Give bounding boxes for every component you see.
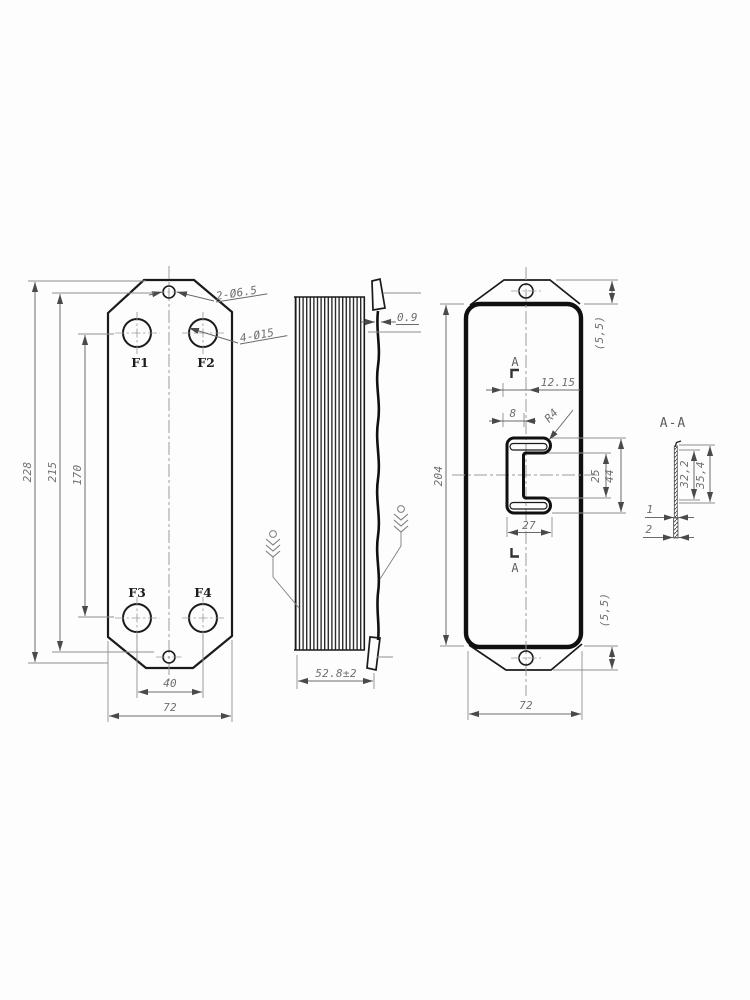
- dim-slot-offset: 12.15: [486, 376, 580, 397]
- port-label-f4: F4: [194, 585, 212, 600]
- dim-228-text: 228: [21, 462, 34, 483]
- back-plate-profile: [377, 311, 379, 640]
- dim-170-text: 170: [71, 465, 84, 486]
- section-mark-bottom: A: [511, 548, 519, 575]
- callout-ports-text: 4-Ø15: [239, 326, 275, 345]
- port-label-f2: F2: [197, 355, 215, 370]
- section-mark-top: A: [511, 355, 519, 378]
- section-label-a-top: A: [511, 355, 519, 369]
- dim-depth-inner: 32,2: [678, 451, 694, 499]
- dim-stack-depth: 52.8±2: [297, 655, 374, 689]
- bottom-tab: [367, 637, 380, 670]
- dim-354-text: 35,4: [694, 461, 707, 490]
- dim-55-bottom-text: (5,5): [598, 593, 611, 628]
- port-label-f3: F3: [128, 585, 146, 600]
- dim-back-width: 72: [468, 651, 582, 720]
- section-title: A-A: [660, 416, 686, 431]
- dim-slot-radius: R4: [542, 406, 573, 440]
- dim-322-text: 32,2: [678, 460, 691, 489]
- section-strip-single: [674, 446, 677, 518]
- dim-1-text: 1: [647, 503, 654, 516]
- top-tab: [372, 279, 385, 310]
- fin-stack: [295, 297, 365, 650]
- dim-tab-top: (5,5): [556, 280, 618, 350]
- front-view: F1 F2 F3 F4 2-Ø6.5 4-Ø15 228: [21, 266, 287, 722]
- dim-528-text: 52.8±2: [315, 667, 357, 680]
- dim-215-text: 215: [46, 462, 59, 483]
- dim-thickness-double: 2: [643, 523, 694, 538]
- dim-plate-gap: 0.9: [361, 311, 419, 325]
- drawing-canvas: F1 F2 F3 F4 2-Ø6.5 4-Ø15 228: [0, 0, 750, 1000]
- dim-09-text: 0.9: [397, 311, 418, 324]
- section-strip-double: [674, 518, 678, 538]
- dim-8-text: 8: [510, 407, 517, 420]
- dim-port-spacing: 40: [137, 634, 203, 698]
- section-label-a-bottom: A: [511, 561, 519, 575]
- dim-25-text: 25: [589, 469, 602, 483]
- dim-slot-step: 8: [489, 407, 536, 427]
- dim-1215-text: 12.15: [541, 376, 576, 389]
- back-view: 204 (5,5) (5,5) 12.15 8: [432, 267, 626, 720]
- dim-2-text: 2: [646, 523, 653, 536]
- engineering-drawing-page: F1 F2 F3 F4 2-Ø6.5 4-Ø15 228: [0, 0, 750, 1000]
- dim-thickness-single: 1: [645, 503, 694, 518]
- dim-44-text: 44: [603, 469, 616, 483]
- section-view: A-A 32,2 35,4 1 2: [643, 416, 715, 538]
- dim-72-back-text: 72: [519, 699, 533, 712]
- dim-depth-outer: 35,4: [694, 446, 710, 502]
- dim-27-text: 27: [522, 519, 536, 532]
- dim-204-text: 204: [432, 466, 445, 487]
- callout-top-hole-text: 2-Ø6.5: [215, 283, 258, 302]
- port-label-f1: F1: [131, 355, 149, 370]
- dim-72-front-text: 72: [163, 701, 177, 714]
- dim-r4-text: R4: [542, 406, 561, 425]
- callout-ports: 4-Ø15: [189, 324, 287, 345]
- dim-slot-width: 27: [507, 517, 552, 537]
- slot-bottom-groove: [510, 503, 547, 510]
- dim-tab-bottom: (5,5): [553, 593, 618, 670]
- slot-top-groove: [510, 444, 547, 451]
- braze-symbol-left: [266, 531, 299, 608]
- braze-symbol-right: [380, 506, 408, 579]
- dim-40-text: 40: [163, 677, 177, 690]
- dim-55-top-text: (5,5): [593, 316, 606, 351]
- side-view: 0.9 52.8±2: [266, 279, 421, 689]
